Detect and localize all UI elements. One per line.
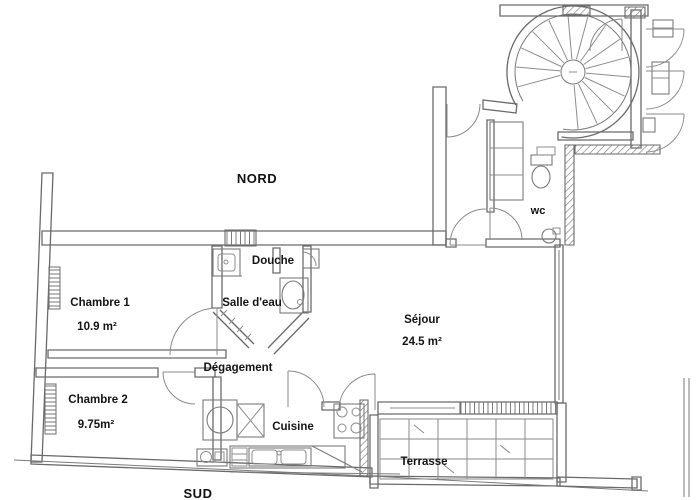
floor-plan-drawing: NORD SUD Chambre 1 10.9 m² Chambre 2 9.7…: [0, 0, 700, 500]
room-label-degagement: Dégagement: [203, 362, 272, 374]
radiator-chambre2: [45, 384, 56, 434]
room-label-douche: Douche: [252, 255, 294, 267]
toilet: [531, 147, 555, 188]
hand-basin: [542, 228, 560, 243]
room-label-cuisine: Cuisine: [272, 421, 314, 433]
water-heater: [203, 400, 237, 440]
room-label-wc: wc: [530, 205, 546, 217]
washbasin: [280, 278, 308, 313]
closet: [490, 122, 523, 200]
wc-fixtures: [490, 122, 560, 243]
spiral-staircase: [507, 6, 639, 138]
floor-plan: NORD SUD Chambre 1 10.9 m² Chambre 2 9.7…: [0, 0, 700, 500]
area-label-chambre2: 9.75m²: [78, 419, 115, 431]
shower-tray: [213, 249, 240, 276]
room-label-sejour: Séjour: [404, 314, 440, 326]
compass-north-label: NORD: [237, 171, 277, 186]
washing-machine: [197, 449, 227, 466]
radiator-chambre1: [49, 267, 60, 309]
room-label-terrasse: Terrasse: [400, 456, 447, 468]
compass-south-label: SUD: [184, 486, 213, 500]
room-label-salle-deau: Salle d'eau: [222, 297, 282, 309]
landing-walls: [500, 5, 684, 245]
room-label-chambre1: Chambre 1: [70, 297, 130, 309]
room-label-chambre2: Chambre 2: [68, 394, 127, 406]
area-label-sejour: 24.5 m²: [402, 336, 442, 348]
area-label-chambre1: 10.9 m²: [77, 321, 117, 333]
labels: NORD SUD Chambre 1 10.9 m² Chambre 2 9.7…: [68, 171, 545, 500]
duct-shaft: [237, 404, 264, 437]
terrace-tiles: [380, 419, 553, 479]
interior-walls: [36, 100, 560, 476]
